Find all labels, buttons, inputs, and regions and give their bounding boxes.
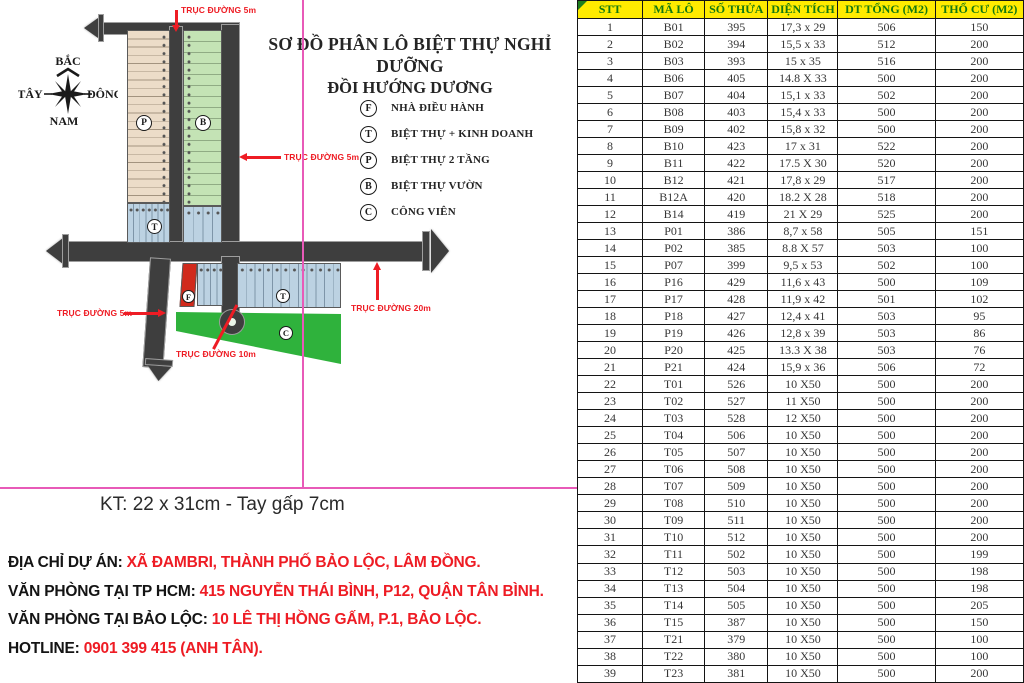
table-cell: 30 [578, 512, 643, 529]
table-cell: P16 [643, 274, 705, 291]
table-cell: 200 [935, 665, 1023, 682]
header-so-thua: SỐ THỬA [705, 1, 768, 19]
table-cell: 29 [578, 495, 643, 512]
table-cell: T01 [643, 376, 705, 393]
road-label-bottom: TRỤC ĐƯỜNG 20m [351, 303, 431, 313]
table-cell: 500 [838, 274, 935, 291]
table-cell: 426 [705, 325, 768, 342]
table-cell: 10 X50 [768, 427, 838, 444]
table-cell: 200 [935, 121, 1023, 138]
table-cell: 503 [838, 240, 935, 257]
table-cell: 421 [705, 172, 768, 189]
table-row: 10B1242117,8 x 29517200 [578, 172, 1024, 189]
zone-t-strip-group-1 [197, 263, 223, 306]
legend-label-b: BIỆT THỰ VƯỜN [391, 180, 483, 192]
table-cell: 21 X 29 [768, 206, 838, 223]
table-cell: 517 [838, 172, 935, 189]
table-cell: 10 X50 [768, 597, 838, 614]
table-cell: 10 [578, 172, 643, 189]
header-stt: STT [578, 1, 643, 19]
table-row: 24T0352812 X50500200 [578, 410, 1024, 427]
road-bottom-right-arrow-bar [423, 232, 429, 270]
zone-c-badge: C [279, 326, 293, 340]
table-cell: 522 [838, 138, 935, 155]
table-cell: 10 X50 [768, 563, 838, 580]
table-cell: 500 [838, 427, 935, 444]
table-cell: 500 [838, 631, 935, 648]
header-dt-tong: DT TỔNG (M2) [838, 1, 935, 19]
table-cell: 11 X50 [768, 393, 838, 410]
table-cell: 205 [935, 597, 1023, 614]
table-row: 13P013868,7 x 58505151 [578, 223, 1024, 240]
contact-label: HOTLINE: [8, 640, 80, 657]
table-cell: 11,9 x 42 [768, 291, 838, 308]
table-row: 35T1450510 X50500205 [578, 597, 1024, 614]
table-cell: 404 [705, 87, 768, 104]
table-cell: 419 [705, 206, 768, 223]
table-cell: 15,5 x 33 [768, 36, 838, 53]
table-cell: 39 [578, 665, 643, 682]
table-cell: 510 [705, 495, 768, 512]
table-cell: 18 [578, 308, 643, 325]
road-bottom-left-arrow [46, 238, 63, 264]
table-cell: 10 X50 [768, 631, 838, 648]
table-cell: 500 [838, 478, 935, 495]
table-row: 16P1642911,6 x 43500109 [578, 274, 1024, 291]
compass-north-label: BẮC [55, 53, 80, 68]
contact-label: VĂN PHÒNG TẠI BẢO LỘC: [8, 611, 208, 628]
table-cell: B12 [643, 172, 705, 189]
legend-symbol-t: T [360, 126, 377, 143]
table-cell: 200 [935, 36, 1023, 53]
table-cell: 500 [838, 393, 935, 410]
table-cell: 20 [578, 342, 643, 359]
table-cell: B11 [643, 155, 705, 172]
table-cell: 8.8 X 57 [768, 240, 838, 257]
legend-label-c: CÔNG VIÊN [391, 206, 456, 218]
table-cell: 502 [838, 87, 935, 104]
table-row: 25T0450610 X50500200 [578, 427, 1024, 444]
table-cell: 500 [838, 665, 935, 682]
table-cell: T23 [643, 665, 705, 682]
table-cell: 505 [705, 597, 768, 614]
table-cell: B02 [643, 36, 705, 53]
table-cell: 403 [705, 104, 768, 121]
table-cell: 15,8 x 32 [768, 121, 838, 138]
table-cell: 429 [705, 274, 768, 291]
table-cell: 423 [705, 138, 768, 155]
table-cell: T04 [643, 427, 705, 444]
road-right-vertical [221, 24, 240, 246]
table-row: 22T0152610 X50500200 [578, 376, 1024, 393]
road-label-left-arrow-head [158, 309, 166, 317]
table-cell: T08 [643, 495, 705, 512]
table-cell: 12,8 x 39 [768, 325, 838, 342]
table-cell: T11 [643, 546, 705, 563]
table-cell: 512 [705, 529, 768, 546]
table-cell: 200 [935, 376, 1023, 393]
table-cell: B14 [643, 206, 705, 223]
table-cell: 200 [935, 444, 1023, 461]
table-cell: T13 [643, 580, 705, 597]
table-cell: 26 [578, 444, 643, 461]
table-cell: 13.3 X 38 [768, 342, 838, 359]
zone-t-left-badge: T [147, 219, 162, 234]
table-row: 36T1538710 X50500150 [578, 614, 1024, 631]
contact-line-hotline: HOTLINE: 0901 399 415 (ANH TÂN). [8, 635, 544, 664]
legend-symbol-f: F [360, 100, 377, 117]
table-cell: 100 [935, 648, 1023, 665]
table-cell: 9,5 x 53 [768, 257, 838, 274]
table-cell: 386 [705, 223, 768, 240]
road-top-arrow-bar [99, 15, 103, 41]
table-cell: 508 [705, 461, 768, 478]
table-row: 31T1051210 X50500200 [578, 529, 1024, 546]
table-cell: 95 [935, 308, 1023, 325]
table-cell: 17 x 31 [768, 138, 838, 155]
zone-f-badge: F [182, 290, 195, 303]
zone-p-badge: P [136, 115, 152, 131]
table-cell: 500 [838, 546, 935, 563]
table-cell: 500 [838, 121, 935, 138]
legend-symbol-p: P [360, 152, 377, 169]
header-ma-lo: MÃ LÔ [643, 1, 705, 19]
table-cell: 506 [838, 19, 935, 36]
table-cell: 387 [705, 614, 768, 631]
table-cell: 198 [935, 563, 1023, 580]
lot-number-dots [128, 206, 169, 214]
table-cell: 151 [935, 223, 1023, 240]
table-row: 9B1142217.5 X 30520200 [578, 155, 1024, 172]
fold-guide-horizontal [0, 487, 577, 489]
table-cell: T14 [643, 597, 705, 614]
table-cell: 7 [578, 121, 643, 138]
table-cell: P21 [643, 359, 705, 376]
table-row: 23T0252711 X50500200 [578, 393, 1024, 410]
table-cell: 509 [705, 478, 768, 495]
table-row: 12B1441921 X 29525200 [578, 206, 1024, 223]
table-cell: 198 [935, 580, 1023, 597]
table-row: 27T0650810 X50500200 [578, 461, 1024, 478]
table-cell: T06 [643, 461, 705, 478]
compass-south-label: NAM [50, 114, 79, 128]
table-cell: 506 [838, 359, 935, 376]
table-cell: 31 [578, 529, 643, 546]
table-cell: 8 [578, 138, 643, 155]
table-cell: 109 [935, 274, 1023, 291]
table-cell: 500 [838, 597, 935, 614]
table-cell: 200 [935, 104, 1023, 121]
table-cell: 3 [578, 53, 643, 70]
table-row: 14P023858.8 X 57503100 [578, 240, 1024, 257]
lot-number-dots [198, 266, 222, 274]
print-size-note: KT: 22 x 31cm - Tay gấp 7cm [100, 494, 345, 516]
table-cell: T07 [643, 478, 705, 495]
table-row: 29T0851010 X50500200 [578, 495, 1024, 512]
table-cell: 200 [935, 53, 1023, 70]
table-cell: B10 [643, 138, 705, 155]
table-cell: 500 [838, 495, 935, 512]
legend-label-t: BIỆT THỰ + KINH DOANH [391, 128, 533, 140]
site-plan-panel: BẮC TÂY ĐÔNG NAM [0, 0, 577, 683]
table-cell: 500 [838, 444, 935, 461]
compass-east-label: ĐÔNG [87, 87, 118, 101]
table-cell: 32 [578, 546, 643, 563]
table-cell: 402 [705, 121, 768, 138]
table-row: 33T1250310 X50500198 [578, 563, 1024, 580]
table-cell: 200 [935, 206, 1023, 223]
fold-guide-vertical [302, 0, 304, 488]
table-cell: 385 [705, 240, 768, 257]
table-cell: 17 [578, 291, 643, 308]
table-cell: 507 [705, 444, 768, 461]
table-cell: 5 [578, 87, 643, 104]
contact-line-hcm-office: VĂN PHÒNG TẠI TP HCM: 415 NGUYỄN THÁI BÌ… [8, 578, 544, 607]
table-cell: 200 [935, 393, 1023, 410]
lot-number-dots [160, 31, 168, 202]
road-bottom-right-arrow [431, 229, 449, 273]
table-cell: 428 [705, 291, 768, 308]
table-row: 34T1350410 X50500198 [578, 580, 1024, 597]
table-cell: 16 [578, 274, 643, 291]
road-bottom-main [66, 241, 423, 262]
table-cell: 6 [578, 104, 643, 121]
table-cell: 11 [578, 189, 643, 206]
table-cell: B01 [643, 19, 705, 36]
table-cell: 200 [935, 410, 1023, 427]
table-cell: 10 X50 [768, 648, 838, 665]
table-row: 4B0640514.8 X 33500200 [578, 70, 1024, 87]
table-cell: 38 [578, 648, 643, 665]
table-cell: 518 [838, 189, 935, 206]
table-cell: 512 [838, 36, 935, 53]
header-tho-cu: THỔ CƯ (M2) [935, 1, 1023, 19]
road-label-left: TRỤC ĐƯỜNG 5m [57, 308, 132, 318]
header-dien-tich: DIỆN TÍCH [768, 1, 838, 19]
table-cell: 10 X50 [768, 461, 838, 478]
table-cell: 503 [705, 563, 768, 580]
table-cell: 19 [578, 325, 643, 342]
table-cell: T10 [643, 529, 705, 546]
compass: BẮC TÂY ĐÔNG NAM [18, 52, 118, 132]
road-label-right: TRỤC ĐƯỜNG 5m [284, 152, 359, 162]
table-cell: 503 [838, 342, 935, 359]
table-cell: 15 x 35 [768, 53, 838, 70]
table-cell: 35 [578, 597, 643, 614]
table-cell: 86 [935, 325, 1023, 342]
table-cell: B06 [643, 70, 705, 87]
legend-item-t: T BIỆT THỰ + KINH DOANH [360, 121, 533, 147]
table-cell: 150 [935, 614, 1023, 631]
table-row: 32T1150210 X50500199 [578, 546, 1024, 563]
table-cell: 102 [935, 291, 1023, 308]
table-cell: 200 [935, 512, 1023, 529]
road-label-bottom-arrow-line [376, 270, 379, 300]
road-label-left-arrow-line [124, 312, 158, 315]
table-row: 7B0940215,8 x 32500200 [578, 121, 1024, 138]
table-cell: 4 [578, 70, 643, 87]
compass-star [48, 74, 88, 114]
contact-block: ĐỊA CHỈ DỰ ÁN: XÃ ĐAMBRI, THÀNH PHỐ BẢO … [8, 549, 544, 663]
table-cell: B09 [643, 121, 705, 138]
table-cell: 100 [935, 257, 1023, 274]
table-cell: 379 [705, 631, 768, 648]
table-cell: 10 X50 [768, 546, 838, 563]
legend-item-p: P BIỆT THỰ 2 TẦNG [360, 147, 533, 173]
road-diagonal-arrow [147, 365, 172, 382]
legend: F NHÀ ĐIỀU HÀNH T BIỆT THỰ + KINH DOANH … [360, 95, 533, 225]
table-cell: B12A [643, 189, 705, 206]
table-cell: B08 [643, 104, 705, 121]
table-cell: 11,6 x 43 [768, 274, 838, 291]
table-cell: 17,8 x 29 [768, 172, 838, 189]
table-cell: 9 [578, 155, 643, 172]
table-cell: 200 [935, 172, 1023, 189]
road-label-top-arrow-line [175, 10, 178, 25]
road-mid-vertical [169, 26, 183, 246]
table-cell: 525 [838, 206, 935, 223]
table-cell: P17 [643, 291, 705, 308]
table-cell: T15 [643, 614, 705, 631]
zone-t-row-badge: T [276, 289, 290, 303]
table-cell: P20 [643, 342, 705, 359]
table-cell: 2 [578, 36, 643, 53]
road-label-top: TRỤC ĐƯỜNG 5m [181, 5, 256, 15]
table-cell: 506 [705, 427, 768, 444]
table-row: 3B0339315 x 35516200 [578, 53, 1024, 70]
table-cell: 27 [578, 461, 643, 478]
table-row: 6B0840315,4 x 33500200 [578, 104, 1024, 121]
table-cell: 36 [578, 614, 643, 631]
table-cell: 500 [838, 70, 935, 87]
legend-item-c: C CÔNG VIÊN [360, 199, 533, 225]
table-cell: 23 [578, 393, 643, 410]
table-row: 38T2238010 X50500100 [578, 648, 1024, 665]
table-cell: 72 [935, 359, 1023, 376]
table-cell: 21 [578, 359, 643, 376]
table-cell: 200 [935, 87, 1023, 104]
table-cell: 501 [838, 291, 935, 308]
table-row: 1B0139517,3 x 29506150 [578, 19, 1024, 36]
legend-symbol-b: B [360, 178, 377, 195]
table-cell: 500 [838, 104, 935, 121]
table-cell: 15,4 x 33 [768, 104, 838, 121]
table-cell: 200 [935, 189, 1023, 206]
table-row: 19P1942612,8 x 3950386 [578, 325, 1024, 342]
table-cell: 25 [578, 427, 643, 444]
table-cell: 17.5 X 30 [768, 155, 838, 172]
contact-label: VĂN PHÒNG TẠI TP HCM: [8, 583, 196, 600]
table-cell: 395 [705, 19, 768, 36]
table-cell: 500 [838, 376, 935, 393]
table-cell: 33 [578, 563, 643, 580]
contact-value: 10 LÊ THỊ HỒNG GẤM, P.1, BẢO LỘC. [212, 611, 482, 628]
table-cell: 528 [705, 410, 768, 427]
table-cell: 10 X50 [768, 495, 838, 512]
road-label-top-arrow-head [172, 25, 180, 32]
road-bottom-left-arrow-bar [63, 235, 68, 267]
table-cell: 200 [935, 427, 1023, 444]
contact-value: 0901 399 415 (ANH TÂN). [84, 640, 263, 657]
table-cell: 422 [705, 155, 768, 172]
table-cell: 8,7 x 58 [768, 223, 838, 240]
lot-number-dots [185, 31, 193, 205]
table-cell: 500 [838, 580, 935, 597]
table-cell: T03 [643, 410, 705, 427]
table-row: 5B0740415,1 x 33502200 [578, 87, 1024, 104]
table-cell: 424 [705, 359, 768, 376]
legend-label-p: BIỆT THỰ 2 TẦNG [391, 154, 490, 166]
table-row: 30T0951110 X50500200 [578, 512, 1024, 529]
table-cell: 18.2 X 28 [768, 189, 838, 206]
table-cell: 10 X50 [768, 614, 838, 631]
legend-symbol-c: C [360, 204, 377, 221]
table-cell: 500 [838, 410, 935, 427]
table-cell: P18 [643, 308, 705, 325]
table-cell: 503 [838, 308, 935, 325]
table-cell: 200 [935, 138, 1023, 155]
table-cell: 15 [578, 257, 643, 274]
table-cell: 511 [705, 512, 768, 529]
table-header-row: STT MÃ LÔ SỐ THỬA DIỆN TÍCH DT TỔNG (M2)… [578, 1, 1024, 19]
table-cell: 505 [838, 223, 935, 240]
table-cell: 200 [935, 155, 1023, 172]
table-cell: 10 X50 [768, 665, 838, 682]
table-cell: 100 [935, 240, 1023, 257]
table-cell: 380 [705, 648, 768, 665]
table-row: 20P2042513.3 X 3850376 [578, 342, 1024, 359]
contact-line-address: ĐỊA CHỈ DỰ ÁN: XÃ ĐAMBRI, THÀNH PHỐ BẢO … [8, 549, 544, 578]
lot-number-dots [238, 266, 340, 274]
table-cell: 17,3 x 29 [768, 19, 838, 36]
table-cell: 381 [705, 665, 768, 682]
road-top-arrow [84, 18, 98, 38]
compass-west-label: TÂY [18, 87, 43, 101]
table-cell: 500 [838, 529, 935, 546]
table-cell: 520 [838, 155, 935, 172]
table-cell: 13 [578, 223, 643, 240]
table-cell: 12,4 x 41 [768, 308, 838, 325]
table-cell: 405 [705, 70, 768, 87]
table-row: 39T2338110 X50500200 [578, 665, 1024, 682]
legend-item-b: B BIỆT THỰ VƯỜN [360, 173, 533, 199]
table-cell: 15,9 x 36 [768, 359, 838, 376]
table-row: 17P1742811,9 x 42501102 [578, 291, 1024, 308]
table-cell: 200 [935, 461, 1023, 478]
contact-label: ĐỊA CHỈ DỰ ÁN: [8, 554, 123, 571]
table-cell: T21 [643, 631, 705, 648]
plan-title-line1: SƠ ĐỒ PHÂN LÔ BIỆT THỰ NGHỈ DƯỠNG [245, 33, 575, 77]
table-cell: 28 [578, 478, 643, 495]
table-cell: 12 X50 [768, 410, 838, 427]
table-cell: 10 X50 [768, 444, 838, 461]
table-cell: 503 [838, 325, 935, 342]
table-cell: B07 [643, 87, 705, 104]
table-cell: 516 [838, 53, 935, 70]
table-cell: 399 [705, 257, 768, 274]
table-cell: 200 [935, 70, 1023, 87]
table-row: 15P073999,5 x 53502100 [578, 257, 1024, 274]
table-cell: 427 [705, 308, 768, 325]
zone-t-strip-group-2 [237, 263, 341, 308]
table-cell: 10 X50 [768, 580, 838, 597]
table-cell: 500 [838, 648, 935, 665]
table-cell: 502 [838, 257, 935, 274]
contact-line-baoloc-office: VĂN PHÒNG TẠI BẢO LỘC: 10 LÊ THỊ HỒNG GẤ… [8, 606, 544, 635]
table-cell: 200 [935, 495, 1023, 512]
table-cell: 504 [705, 580, 768, 597]
table-cell: 500 [838, 461, 935, 478]
